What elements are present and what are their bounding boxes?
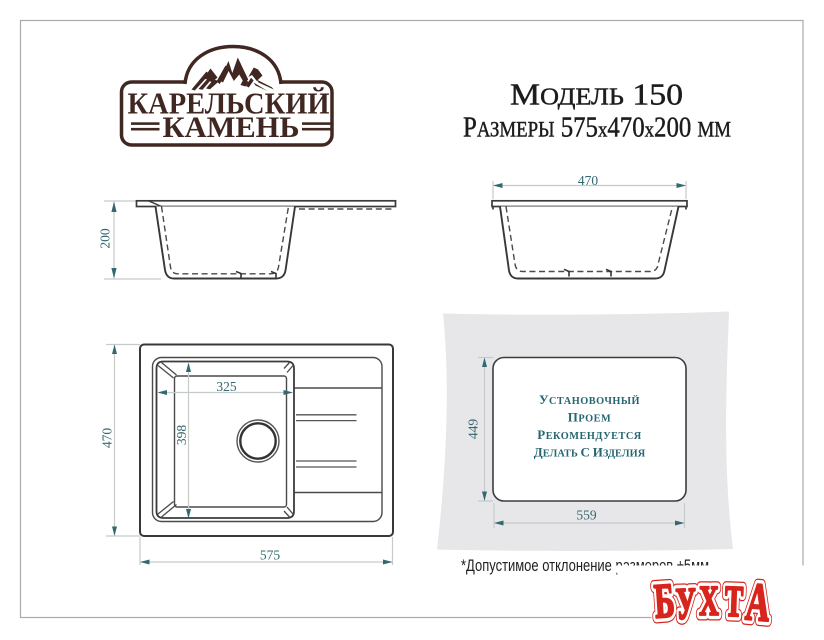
svg-text:Б: Б — [652, 573, 676, 628]
svg-text:559: 559 — [576, 508, 597, 523]
svg-text:200: 200 — [98, 228, 113, 249]
svg-text:У: У — [675, 580, 697, 630]
svg-text:Т: Т — [724, 576, 744, 626]
svg-text:КАМЕНЬ: КАМЕНЬ — [163, 111, 300, 144]
svg-text:Х: Х — [699, 577, 719, 624]
svg-text:398: 398 — [174, 425, 189, 446]
svg-text:325: 325 — [216, 379, 237, 394]
svg-text:470: 470 — [100, 428, 115, 449]
svg-text:575: 575 — [260, 548, 281, 563]
svg-text:449: 449 — [466, 419, 481, 440]
svg-text:470: 470 — [578, 173, 599, 188]
